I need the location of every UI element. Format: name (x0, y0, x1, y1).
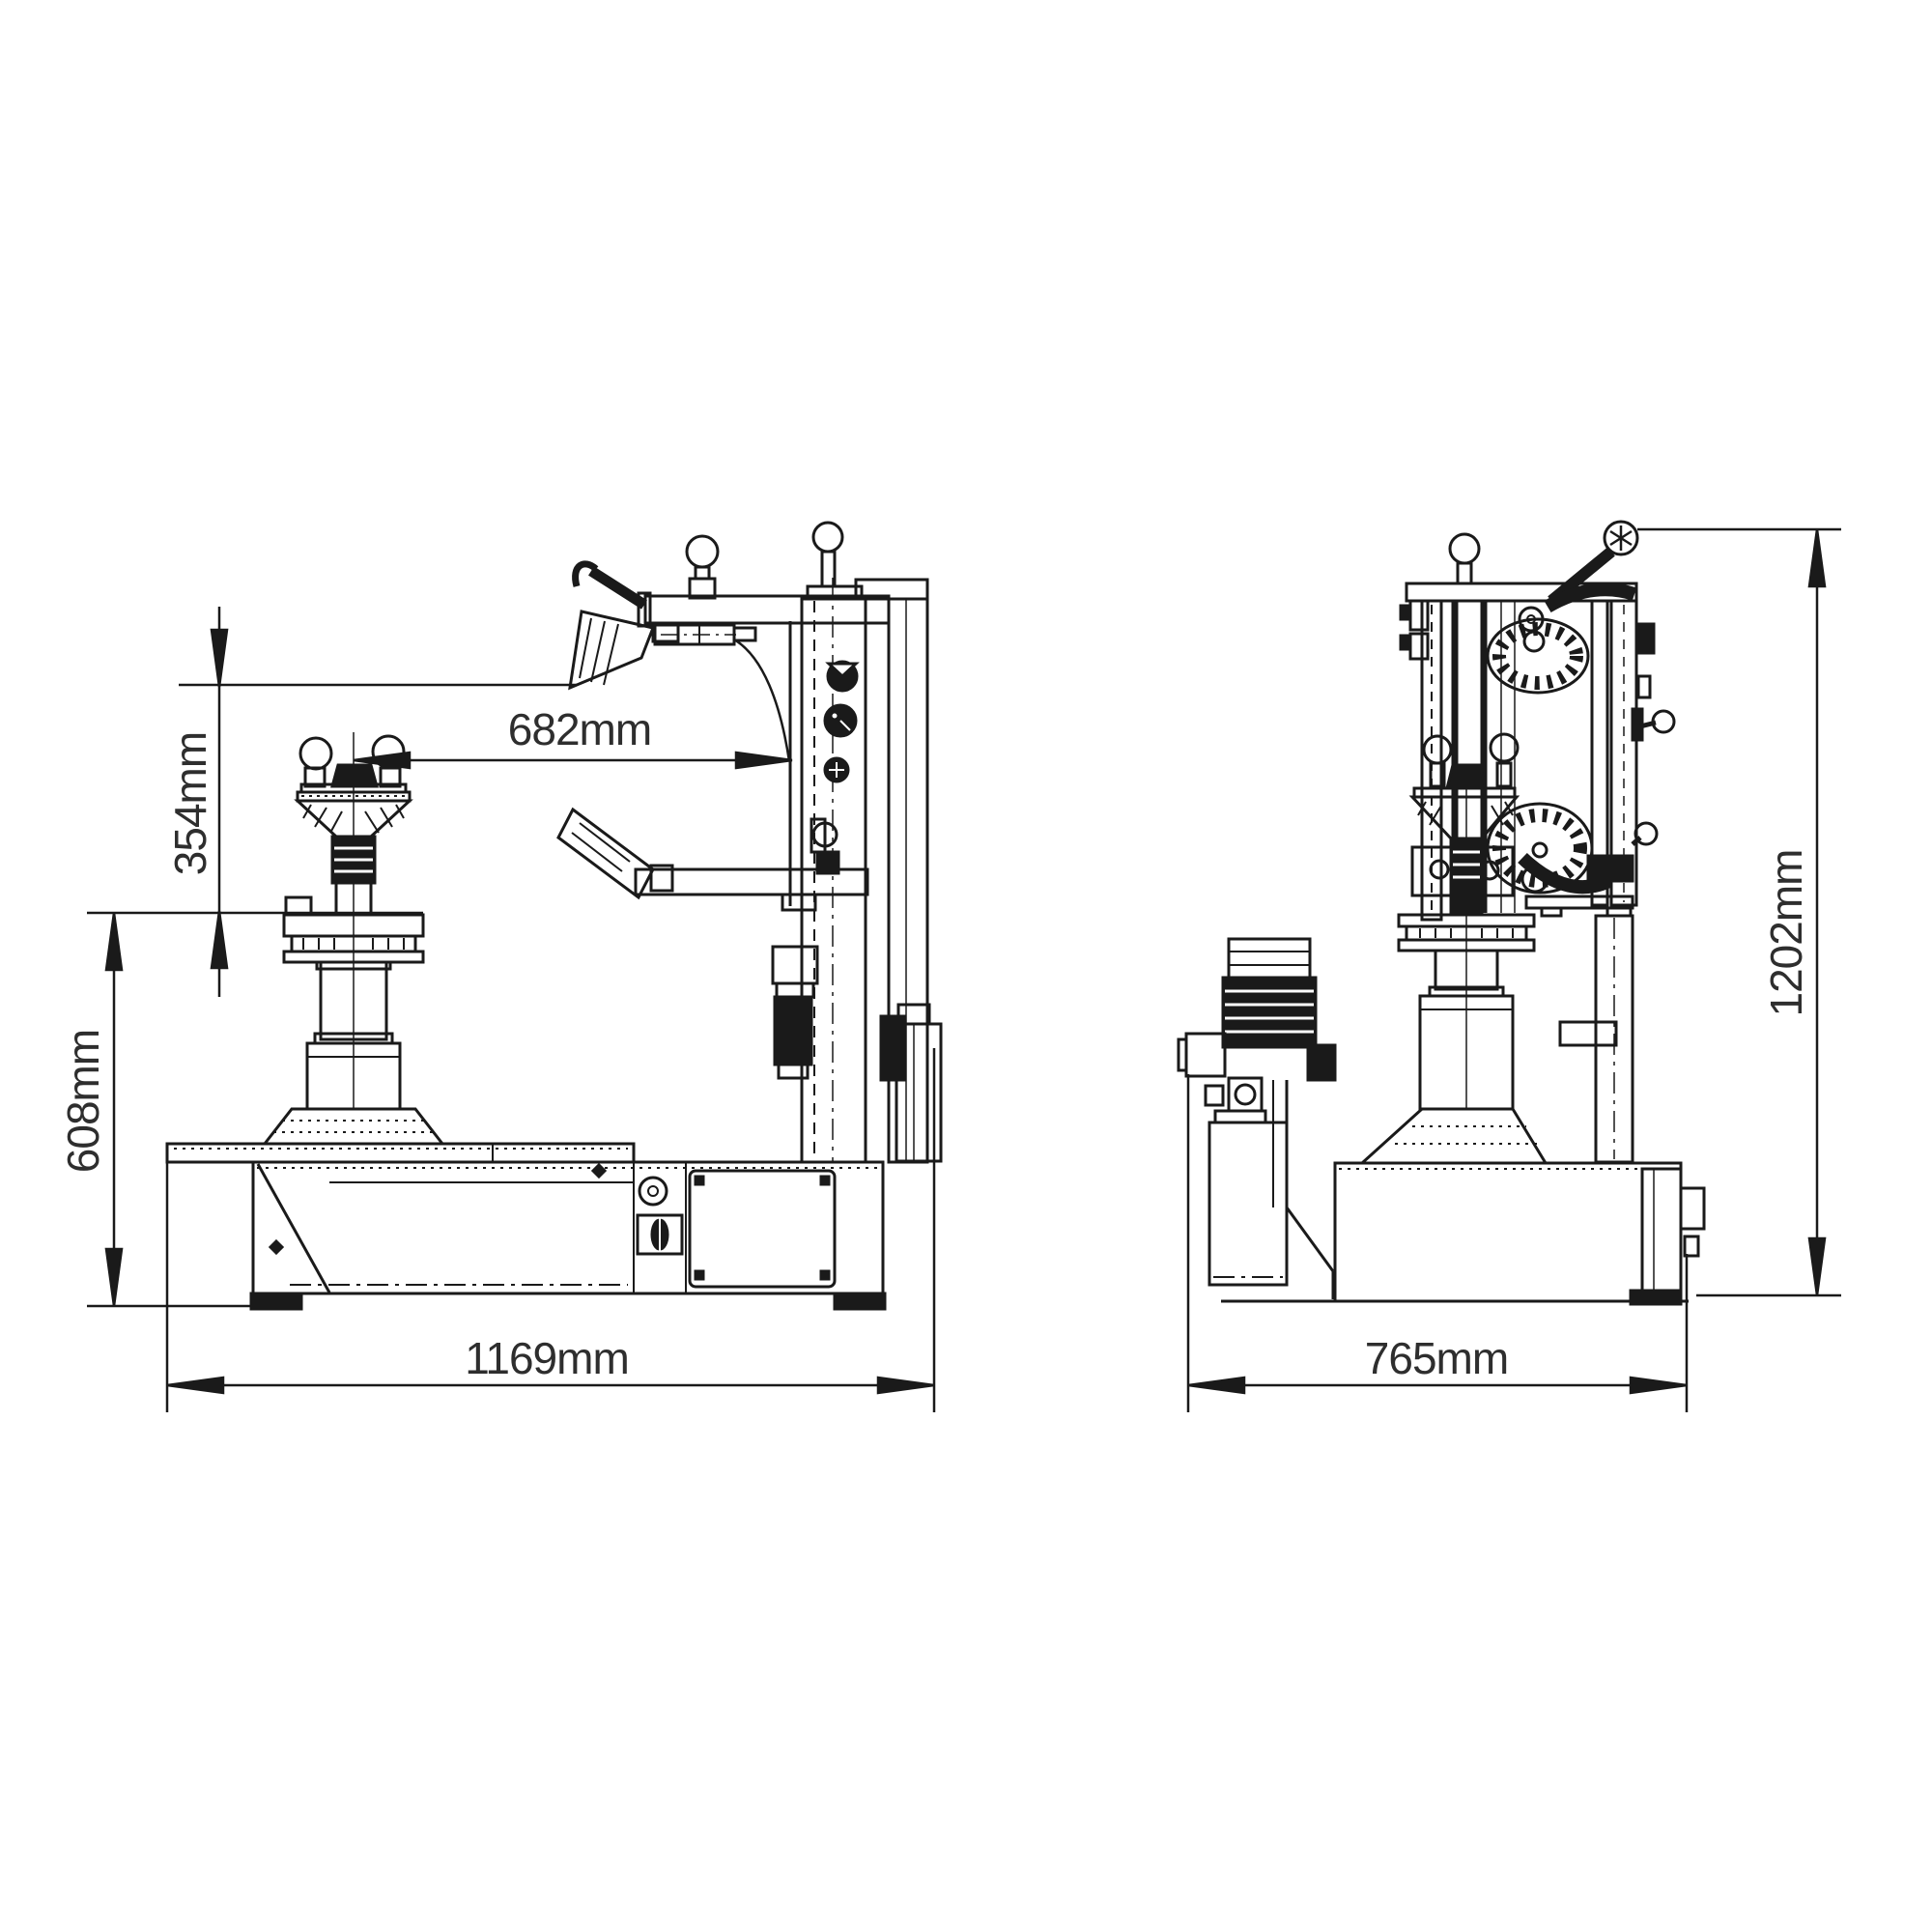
lever-ball-icon (687, 536, 718, 567)
power-knob-icon (639, 1178, 667, 1205)
lever-ball-icon (813, 523, 842, 552)
dim-label-overall-depth: 765mm (1345, 1335, 1528, 1381)
dim-label-arm-to-center: 682mm (493, 706, 667, 753)
lever-ball-icon (1653, 711, 1674, 732)
lever-ball-icon (1450, 534, 1479, 563)
side-base-cabinet (1221, 1163, 1704, 1304)
dim-label-table-height: 608mm (60, 1024, 106, 1179)
front-view-drawing (167, 523, 941, 1309)
machine-drawing (0, 0, 1932, 1932)
side-view-drawing (1179, 522, 1704, 1304)
side-motor-unit (1179, 939, 1335, 1299)
front-base-cabinet (167, 1144, 885, 1309)
front-pedestal (265, 732, 442, 1144)
dim-label-overall-width: 1169mm (440, 1335, 653, 1381)
side-frame (1401, 522, 1674, 1162)
dimension-lines (87, 529, 1841, 1412)
dim-label-head-travel: 354mm (167, 726, 213, 881)
technical-drawing-page: 682mm 354mm 608mm 1169mm 765mm 1202mm (0, 0, 1932, 1932)
dim-label-overall-height: 1202mm (1763, 841, 1809, 1025)
